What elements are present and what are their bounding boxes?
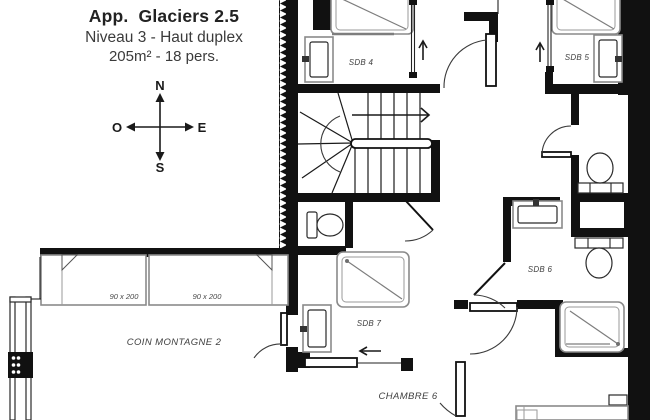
- compass-west-arrowhead: [126, 123, 135, 132]
- door-sdb6: [470, 303, 517, 354]
- sink-sdb7: [300, 305, 331, 352]
- surface-capacity: 205m² - 18 pers.: [40, 48, 288, 65]
- compass-o: O: [112, 120, 122, 135]
- compass-rose: N S E O: [112, 78, 207, 175]
- toilet-wc-stairs: [307, 212, 343, 238]
- compass-e: E: [198, 120, 207, 135]
- door-corridor-wc: [405, 200, 433, 241]
- door-hall-top: [444, 34, 496, 88]
- door-chambre6-left: [440, 362, 465, 416]
- room-label-sdb5: SDB 5: [565, 53, 590, 62]
- compass-s: S: [156, 160, 165, 175]
- sink-sdb4: [302, 37, 333, 82]
- bed-chambre6: [516, 395, 628, 420]
- room-label-chambre6: CHAMBRE 6: [378, 391, 437, 402]
- door-chambre6-diagonal: [474, 263, 505, 308]
- shower-sdb6: [560, 302, 624, 352]
- staircase: [298, 93, 432, 193]
- floor-plan-page: { "title_block": { "title": "App. Glacie…: [0, 0, 650, 420]
- stair-direction-arrow: [352, 108, 429, 122]
- level-subtitle: Niveau 3 - Haut duplex: [40, 29, 288, 47]
- compass-north-arrowhead: [156, 93, 165, 102]
- bed-size-label-1: 90 x 200: [110, 292, 140, 301]
- wall-niche: [580, 202, 624, 228]
- toilet-wc1: [578, 153, 623, 193]
- slide-arrow-sdb7: [360, 347, 381, 355]
- entry-arrow-sdb5: [536, 43, 544, 62]
- sink-sdb6: [513, 199, 562, 228]
- room-label-coin-montagne: COIN MONTAGNE 2: [127, 337, 222, 348]
- compass-east-arrowhead: [185, 123, 194, 132]
- shower-sdb4: [331, 0, 413, 34]
- toilet-sdb6: [575, 238, 623, 278]
- room-label-sdb7: SDB 7: [357, 319, 382, 328]
- shower-sdb5: [552, 0, 620, 34]
- door-wc1: [542, 126, 571, 157]
- compass-n: N: [155, 78, 164, 93]
- door-coin-montagne: [254, 313, 287, 358]
- title-block: App. Glaciers 2.5 Niveau 3 - Haut duplex…: [40, 6, 288, 65]
- room-label-sdb4: SDB 4: [349, 58, 374, 67]
- bed-size-label-2: 90 x 200: [193, 292, 223, 301]
- stair-rail: [351, 139, 432, 148]
- entry-arrow-sdb4: [419, 41, 427, 60]
- room-label-sdb6: SDB 6: [528, 265, 553, 274]
- shower-sdb7: [337, 252, 409, 307]
- apartment-title: App. Glaciers 2.5: [40, 6, 288, 27]
- sink-sdb5: [594, 35, 622, 82]
- window-coin-montagne: [8, 257, 41, 420]
